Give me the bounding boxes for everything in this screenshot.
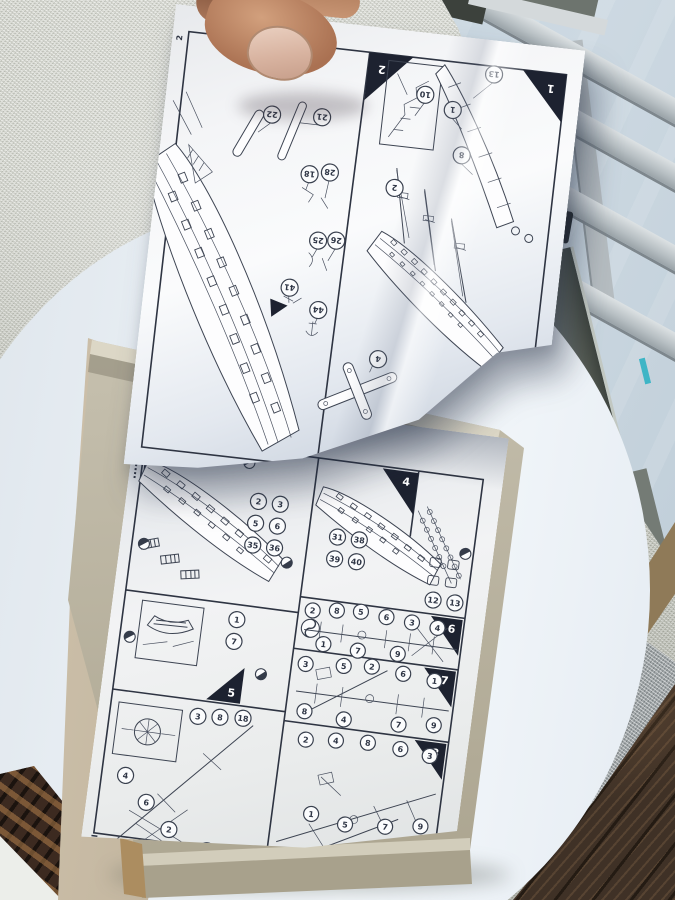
svg-text:7: 7 — [231, 637, 238, 647]
small-callout-circle — [511, 226, 520, 235]
svg-text:12: 12 — [427, 595, 439, 605]
svg-text:38: 38 — [353, 535, 366, 545]
svg-text:3: 3 — [302, 660, 309, 670]
svg-text:40: 40 — [350, 557, 363, 567]
svg-text:25: 25 — [312, 235, 325, 245]
svg-text:2: 2 — [302, 735, 309, 745]
panel-grid — [94, 435, 483, 877]
svg-text:7: 7 — [395, 720, 402, 730]
windlass-detail-inset — [112, 702, 182, 762]
mast-assembly-step5 — [115, 710, 253, 859]
svg-text:7: 7 — [382, 822, 389, 832]
glass-reflection-accent — [639, 358, 651, 385]
svg-text:44: 44 — [312, 304, 325, 314]
svg-text:13: 13 — [488, 69, 500, 79]
svg-text:3: 3 — [426, 752, 433, 762]
prow-drawing-step1 — [419, 64, 530, 230]
bowsprit-lines — [169, 90, 206, 135]
photo-scene: 3 4 5 6 7 8 — [0, 0, 675, 900]
small-callout-circle — [524, 234, 533, 243]
svg-text:36: 36 — [268, 543, 281, 553]
svg-text:18: 18 — [303, 169, 316, 179]
step-marker-4: 4 — [377, 468, 418, 514]
svg-text:3: 3 — [277, 500, 284, 510]
svg-text:26: 26 — [330, 235, 343, 245]
step-marker-1: 1 — [517, 70, 566, 123]
svg-text:2: 2 — [309, 606, 316, 616]
svg-text:2: 2 — [368, 662, 375, 672]
svg-text:18: 18 — [237, 714, 250, 724]
svg-text:3: 3 — [409, 618, 416, 628]
svg-text:13: 13 — [449, 598, 461, 608]
assembly-arrow-marker — [268, 299, 288, 319]
svg-text:41: 41 — [283, 282, 296, 292]
step-marker-5: 5 — [206, 664, 244, 704]
svg-text:10: 10 — [419, 89, 432, 99]
svg-text:2: 2 — [165, 825, 172, 835]
hull-drawing-step3 — [133, 449, 287, 588]
boat-detail-inset — [135, 600, 204, 666]
part-callouts-step2: 22 21 18 28 25 26 41 44 — [241, 102, 359, 320]
svg-text:7: 7 — [354, 646, 361, 656]
small-fittings-drawings — [280, 187, 336, 337]
svg-text:3: 3 — [194, 712, 201, 722]
svg-text:2: 2 — [255, 497, 262, 507]
svg-text:28: 28 — [324, 167, 337, 177]
svg-text:2: 2 — [391, 183, 398, 193]
svg-text:39: 39 — [328, 554, 341, 564]
svg-text:2: 2 — [377, 62, 386, 76]
detail-circle-icon — [300, 618, 320, 638]
step-marker-6: 6 — [426, 616, 462, 656]
svg-text:35: 35 — [247, 540, 260, 550]
svg-text:1: 1 — [546, 82, 555, 96]
thumb-cast-shadow — [238, 92, 368, 120]
page-number: 2 — [175, 35, 185, 42]
svg-text:31: 31 — [331, 532, 344, 542]
